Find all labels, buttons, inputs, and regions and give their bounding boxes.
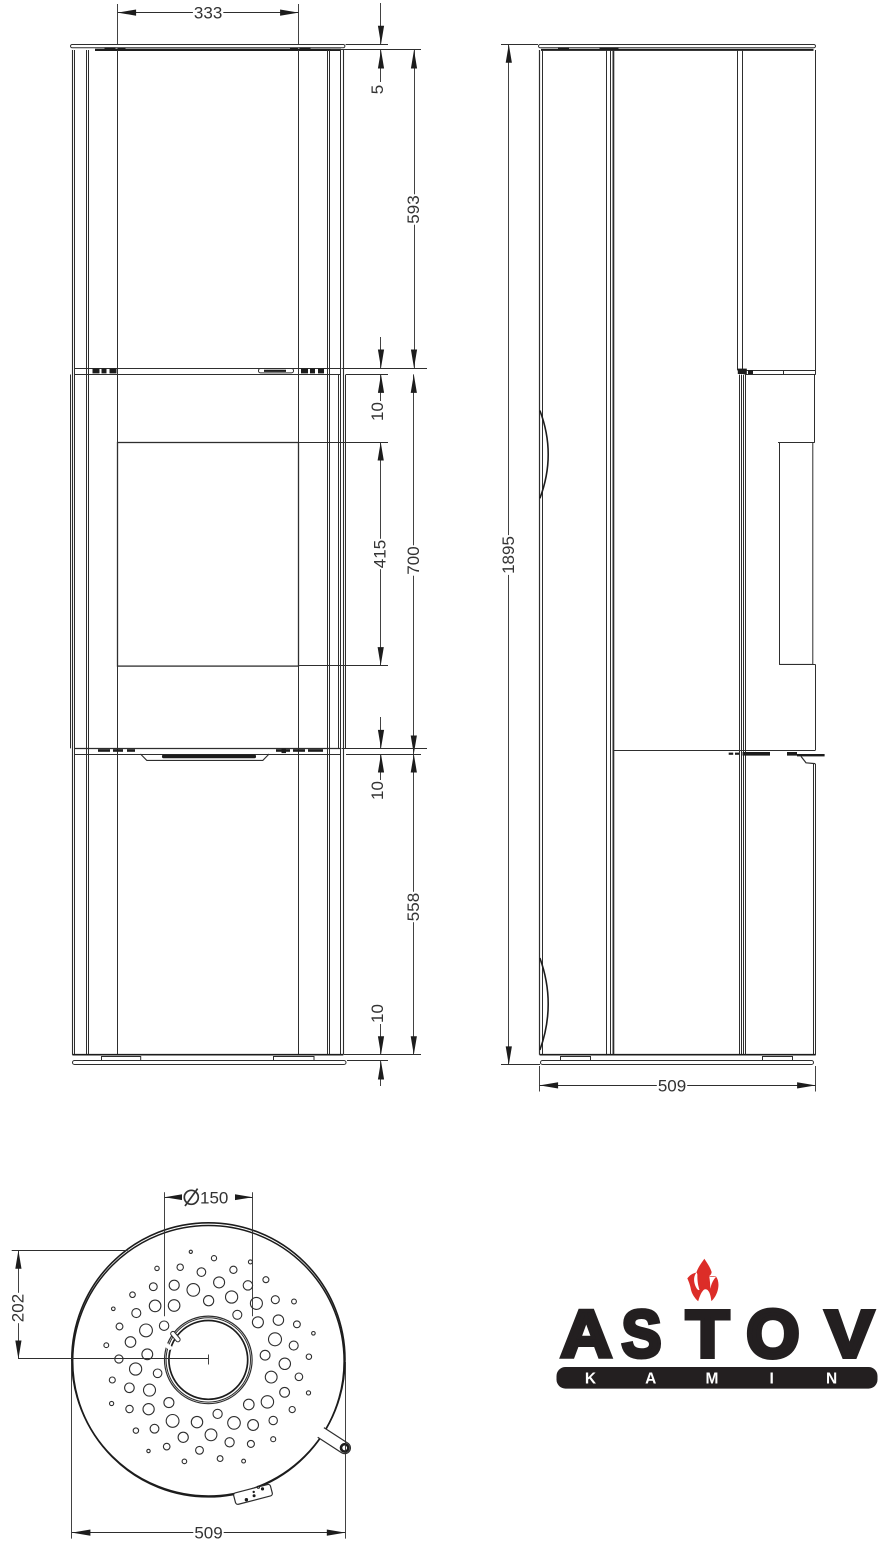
svg-text:O: O — [747, 1297, 800, 1372]
svg-text:T: T — [686, 1297, 729, 1372]
svg-text:558: 558 — [404, 893, 423, 921]
svg-text:509: 509 — [194, 1524, 222, 1543]
svg-text:5: 5 — [368, 85, 387, 94]
svg-text:10: 10 — [368, 781, 387, 800]
svg-text:509: 509 — [658, 1077, 686, 1096]
svg-text:K: K — [585, 1371, 597, 1388]
svg-text:593: 593 — [404, 195, 423, 223]
svg-text:N: N — [826, 1371, 837, 1388]
svg-text:V: V — [825, 1297, 874, 1372]
svg-text:M: M — [706, 1371, 719, 1388]
svg-text:700: 700 — [404, 546, 423, 574]
svg-text:A: A — [645, 1371, 656, 1388]
svg-text:10: 10 — [368, 402, 387, 421]
svg-text:A: A — [560, 1296, 612, 1371]
svg-text:S: S — [621, 1296, 661, 1372]
svg-text:202: 202 — [9, 1294, 28, 1322]
svg-text:I: I — [770, 1371, 774, 1388]
svg-text:415: 415 — [371, 540, 390, 568]
svg-text:150: 150 — [200, 1189, 228, 1208]
svg-text:1895: 1895 — [499, 536, 518, 574]
svg-text:333: 333 — [194, 4, 222, 23]
svg-text:10: 10 — [368, 1004, 387, 1023]
